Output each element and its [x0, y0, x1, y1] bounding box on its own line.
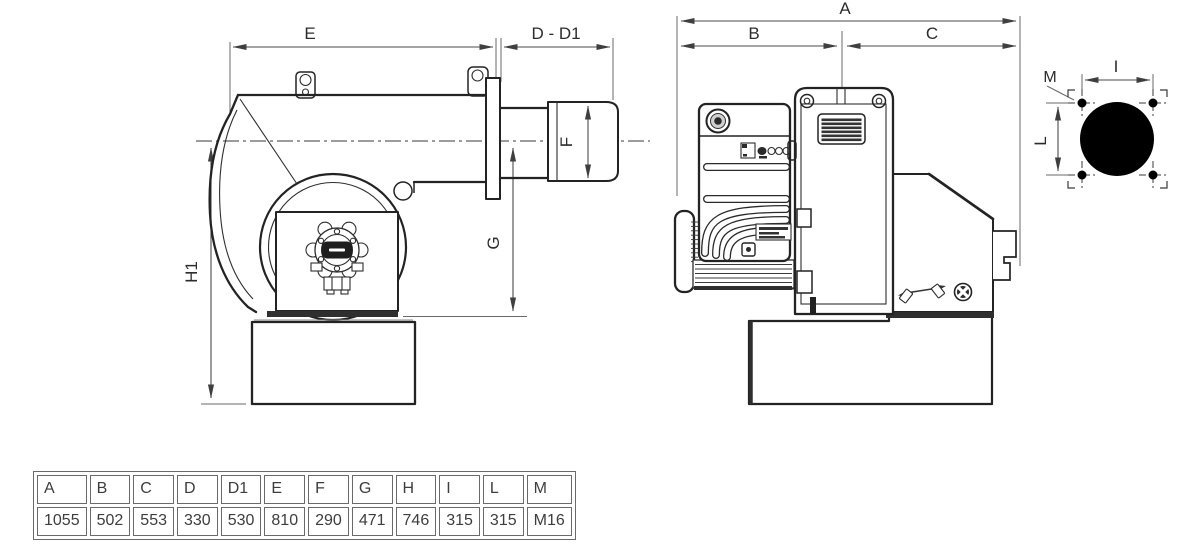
- reset-knob-icon: [707, 110, 730, 133]
- table-value-cell: 553: [133, 507, 174, 536]
- bolt-hole-icon: [394, 182, 412, 200]
- table-header-row: A B C D D1 E F G H I L M: [37, 475, 572, 504]
- table-header-cell: B: [90, 475, 131, 504]
- technical-drawing: E D - D1 H1 G: [0, 0, 1178, 462]
- burner-dimensions-page: E D - D1 H1 G: [0, 0, 1178, 549]
- table-value-cell: 1055: [37, 507, 87, 536]
- dim-label-d-d1: D - D1: [531, 24, 580, 43]
- dim-label-c: C: [926, 24, 938, 43]
- dimensions-table: A B C D D1 E F G H I L M 1055 502 553 33…: [33, 471, 576, 540]
- table-value-row: 1055 502 553 330 530 810 290 471 746 315…: [37, 507, 572, 536]
- table-header-cell: M: [527, 475, 572, 504]
- motor-capacitor: [675, 211, 694, 292]
- base-box: [749, 318, 992, 404]
- table-header-cell: H: [396, 475, 437, 504]
- table-value-cell: 471: [352, 507, 393, 536]
- dim-label-g: G: [484, 236, 503, 249]
- table-value-cell: 330: [177, 507, 218, 536]
- table-header-cell: E: [264, 475, 305, 504]
- hinge-bracket: [797, 271, 812, 293]
- adjustment-wheel-icon: [955, 284, 972, 301]
- fan-scroll-outline: [210, 95, 256, 312]
- table-value-cell: 290: [308, 507, 349, 536]
- table-header-cell: F: [308, 475, 349, 504]
- side-connector: [993, 231, 1016, 280]
- dim-label-m: M: [1043, 69, 1056, 86]
- dim-label-b: B: [748, 24, 759, 43]
- flange-bore: [1080, 102, 1154, 176]
- table-value-cell: 530: [221, 507, 262, 536]
- dim-label-f: F: [557, 137, 576, 147]
- table-header-cell: I: [439, 475, 480, 504]
- table-header-cell: G: [352, 475, 393, 504]
- side-view: E D - D1 H1 G: [182, 24, 650, 404]
- nameplate: [756, 224, 791, 240]
- rear-view: A B C: [675, 0, 1020, 404]
- table-header-cell: D1: [221, 475, 262, 504]
- table-value-cell: 810: [264, 507, 305, 536]
- base-plate: [267, 311, 398, 317]
- table-value-cell: 315: [483, 507, 524, 536]
- dim-label-h1: H1: [182, 261, 201, 283]
- dim-label-a: A: [839, 0, 851, 18]
- vent-louver-icon: [818, 114, 865, 144]
- dim-label-e: E: [304, 24, 315, 43]
- base-box: [252, 322, 415, 404]
- flange-bolt-pattern: M I L: [1031, 57, 1167, 189]
- dim-label-l: L: [1031, 136, 1050, 145]
- table-header-cell: L: [483, 475, 524, 504]
- table-value-cell: 315: [439, 507, 480, 536]
- mounting-flange: [486, 78, 500, 199]
- table-header-cell: C: [133, 475, 174, 504]
- dim-label-i: I: [1114, 57, 1119, 76]
- table-header-cell: A: [37, 475, 87, 504]
- table-value-cell: 746: [396, 507, 437, 536]
- table-value-cell: 502: [90, 507, 131, 536]
- table-header-cell: D: [177, 475, 218, 504]
- table-value-cell: M16: [527, 507, 572, 536]
- hinge-bracket: [797, 209, 811, 227]
- motor-fins: [693, 260, 808, 302]
